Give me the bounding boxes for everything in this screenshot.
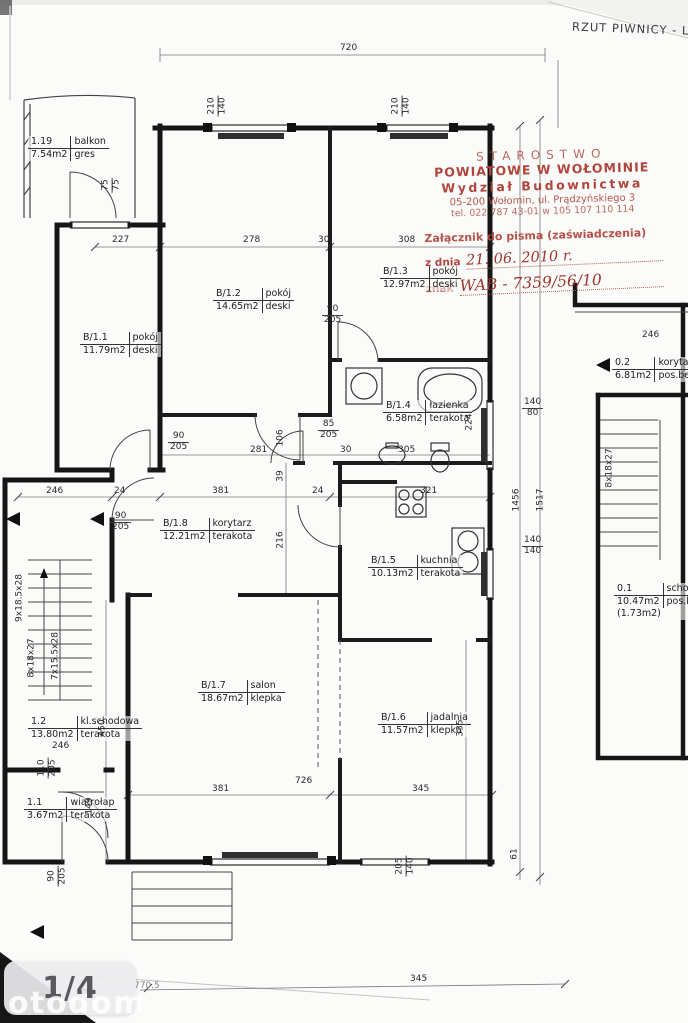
- dim-total-height: 1517: [537, 489, 546, 512]
- dim-window: 210140: [392, 95, 413, 116]
- dim-door: 90205: [110, 512, 131, 533]
- room-label-schowek-01: 0.1schowek 10.47m2pos.bet. (1.73m2): [614, 583, 688, 620]
- right-fragment-walls: [575, 285, 688, 758]
- dim-label: 335: [457, 719, 466, 736]
- dim-door: 90205: [168, 432, 189, 453]
- stair-riser-label: 9x18.5x28: [16, 574, 25, 622]
- exterior-steps: [132, 872, 232, 940]
- dim-label: 281: [250, 446, 267, 455]
- stamp-attachment-note: Załącznik do pisma (zaświadczenia): [424, 226, 662, 245]
- dim-label: 149: [86, 797, 95, 814]
- stair-riser-label: 8x18x27: [606, 448, 615, 487]
- room-label-b17: B/1.7salon 18.67m2klepka: [198, 680, 285, 705]
- dim-label: 321: [420, 487, 437, 496]
- dim-label: 24: [114, 487, 125, 496]
- floorplan-photo[interactable]: RZUT PIWNICY - LOK. STAROSTWO POWIATOWE …: [0, 0, 688, 1023]
- toilet: [431, 443, 449, 472]
- dim-label: 345: [412, 785, 429, 794]
- dim-label: 726: [295, 777, 312, 786]
- washing-machine: [346, 368, 382, 404]
- dim-label: 216: [277, 531, 286, 548]
- dim-wall-height: 1456: [513, 489, 522, 512]
- dim-window: 140140: [522, 536, 543, 557]
- otodom-watermark: otodom: [8, 986, 146, 1021]
- room-label-wiatrolap: 1.1wiatrołap 3.67m2terakota: [24, 797, 117, 822]
- dim-door: 85205: [318, 420, 339, 441]
- dim-label: 24: [312, 487, 323, 496]
- room-label-b15: B/1.5kuchnia 10.13m2terakota: [368, 555, 463, 580]
- room-label-b14: B/1.4łazienka 6.58m2terakota: [383, 400, 472, 425]
- dim-label: 345: [410, 975, 427, 984]
- dim-balcony: 7575: [102, 177, 123, 192]
- dashed-lines: [318, 600, 340, 770]
- dim-label: 61: [511, 848, 520, 859]
- dim-window: 14080: [522, 398, 543, 419]
- dim-label: 450: [99, 719, 108, 736]
- dim-label: 39: [277, 470, 286, 481]
- dim-label: 106: [277, 429, 286, 446]
- dim-total-width: 720: [340, 44, 357, 53]
- dim-label: 30: [340, 446, 351, 455]
- room-label-korytarz-02: 0.2korytarz 6.81m2pos.bet.: [612, 357, 688, 382]
- dim-label: 227: [112, 236, 129, 245]
- dim-label: 308: [398, 236, 415, 245]
- dim-window: 210140: [208, 95, 229, 116]
- room-label-klatka: 1.2kl.schodowa 13.80m2terakota: [28, 716, 142, 741]
- stairs-direction-arrow: [40, 568, 48, 578]
- stamp-date-handwritten: 21. 06. 2010 r.: [466, 244, 663, 270]
- room-label-balkon: 1.19balkon 7.54m2gres: [28, 136, 109, 161]
- dim-label: 30: [318, 236, 329, 245]
- dim-door: 110205: [38, 757, 59, 778]
- dim-label: 246: [642, 331, 659, 340]
- dim-label: 224: [466, 413, 475, 430]
- dim-label: 278: [243, 236, 260, 245]
- stair-riser-label: 8x18x27: [28, 638, 37, 677]
- dim-door: 90205: [48, 865, 69, 886]
- dim-door: 90205: [322, 305, 343, 326]
- dim-label: 305: [398, 446, 415, 455]
- dim-label: 381: [212, 487, 229, 496]
- dim-label: 246: [52, 742, 69, 751]
- dim-window: 205140: [396, 855, 417, 876]
- stair-riser-label: 7x15.5x28: [52, 632, 61, 680]
- room-label-b13: B/1.3pokój 12.97m2deski: [380, 266, 461, 291]
- right-fragment-stairs: [575, 312, 688, 560]
- dim-label: 381: [212, 785, 229, 794]
- room-label-b11: B/1.1pokój 11.79m2deski: [80, 332, 161, 357]
- room-label-b12: B/1.2pokój 14.65m2deski: [213, 288, 294, 313]
- dim-label: 246: [46, 487, 63, 496]
- room-label-b18: B/1.8korytarz 12.21m2terakota: [160, 518, 255, 543]
